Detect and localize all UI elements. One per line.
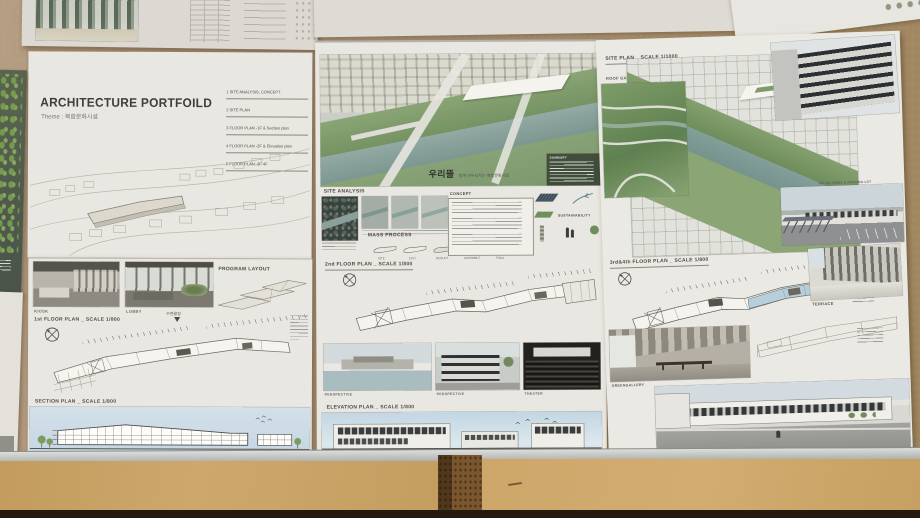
tree-canopy-dots bbox=[0, 74, 23, 255]
theater-label: THEATER bbox=[525, 392, 543, 396]
kiosk-label: KIOSK bbox=[34, 309, 48, 314]
lot-markings bbox=[840, 228, 900, 240]
floor2-title: 2nd FLOOR PLAN _ SCALE 1/800 bbox=[325, 261, 413, 270]
mass-step-label: DEDUCT bbox=[436, 256, 449, 260]
building-band bbox=[353, 356, 393, 362]
terrace-label: TERRACE bbox=[812, 301, 834, 307]
program-layout-label: PROGRAM LAYOUT bbox=[218, 266, 270, 272]
index-item: 2 SITE PLAN bbox=[226, 107, 308, 117]
colonnade-stripes bbox=[36, 0, 138, 30]
person-icon bbox=[566, 228, 569, 238]
theater-interior-photo bbox=[523, 342, 600, 389]
hero-title: 우리뜰 bbox=[429, 169, 455, 179]
portfolio-title: ARCHITECTURE PORTFOILD bbox=[40, 95, 212, 110]
window-strip bbox=[338, 427, 446, 434]
cyclist-silhouette bbox=[776, 431, 780, 438]
analysis-map-3 bbox=[422, 196, 448, 228]
terrace-photo bbox=[808, 244, 903, 301]
facade-window-bands bbox=[441, 355, 499, 381]
facade-fins bbox=[822, 244, 902, 284]
left-edge-landscape-board bbox=[0, 70, 27, 297]
elevation-building-mid bbox=[462, 432, 518, 448]
window-strip bbox=[465, 435, 515, 440]
bar-diagram-sketch bbox=[244, 3, 286, 40]
street-tree bbox=[503, 357, 513, 367]
sky-sliver bbox=[808, 248, 825, 269]
person-icon bbox=[571, 230, 574, 238]
section-title: SECTION PLAN _ SCALE 1/800 bbox=[35, 399, 116, 405]
analysis-map-1 bbox=[362, 196, 388, 228]
map-river-line bbox=[392, 205, 418, 219]
facade-window-bands bbox=[797, 42, 894, 115]
analysis-map-2 bbox=[392, 196, 418, 228]
elevation-title: ELEVATION PLAN _ SCALE 1/800 bbox=[327, 404, 415, 410]
mass-step-label: FINAL bbox=[496, 256, 505, 260]
site-analysis-label: SITE ANALYSIS bbox=[324, 188, 365, 194]
middle-board: 우리뜰 함께 어우러지는 복합문화시설 SUMMARY SITE ANALYSI… bbox=[315, 39, 607, 466]
floor1-plan-drawing bbox=[36, 321, 306, 402]
window-strip bbox=[338, 438, 408, 444]
curved-paths bbox=[601, 81, 689, 198]
index-item: 1 SITE ANALYSIS, CONCEPT bbox=[226, 89, 308, 99]
window-strip bbox=[535, 426, 581, 433]
mass-step-shape bbox=[402, 242, 428, 254]
gap-shadow bbox=[438, 455, 452, 513]
parking-lot-photo bbox=[781, 184, 905, 246]
concept-paragraph-lines bbox=[452, 218, 522, 230]
facade-photo bbox=[771, 35, 900, 121]
hero-title-group: 우리뜰 함께 어우러지는 복합문화시설 bbox=[429, 164, 509, 182]
courtyard-render-photo bbox=[36, 0, 139, 42]
elevation-building-right bbox=[532, 423, 584, 447]
terrace-deck bbox=[810, 282, 903, 301]
plan-diagram-sketch bbox=[190, 0, 231, 43]
sustainability-label: SUSTAINABILITY bbox=[558, 213, 591, 217]
concept-paragraph-lines bbox=[452, 234, 522, 246]
canopy-posts bbox=[783, 220, 837, 234]
mass-step-label: ASSEMBLE bbox=[464, 256, 480, 260]
greengallery-photo bbox=[609, 326, 751, 382]
aerial-city-sketch bbox=[30, 129, 311, 256]
side-wall bbox=[771, 49, 802, 121]
axon-legend-lines bbox=[857, 327, 883, 344]
right-board: SITE PLAN _ SCALE 1/1000 ROOF GARDEN bbox=[596, 31, 913, 460]
upper-left-board bbox=[22, 0, 319, 50]
aerial-park-render-inset bbox=[601, 81, 689, 198]
map-river-line bbox=[422, 205, 448, 219]
concept-text-box bbox=[448, 198, 534, 256]
lobby-label: LOBBY bbox=[126, 309, 142, 314]
mass-process-label: MASS PROCESS bbox=[368, 232, 412, 238]
summary-label: SUMMARY bbox=[550, 155, 601, 159]
program-layout-axon-diagram bbox=[214, 275, 310, 317]
satellite-caption-lines bbox=[322, 242, 356, 250]
upper-middle-paper bbox=[314, 0, 751, 37]
street-trees bbox=[846, 410, 876, 421]
furniture bbox=[133, 292, 173, 300]
window-mullions bbox=[73, 270, 117, 292]
elevation-building-left bbox=[334, 424, 450, 449]
bottom-dark-edge bbox=[0, 510, 920, 518]
plan-legend-lines bbox=[290, 315, 308, 339]
building-left-wing bbox=[655, 393, 690, 428]
seat-rows bbox=[525, 360, 598, 387]
bird-landscape-icon bbox=[572, 191, 594, 205]
concept-label: CONCEPT bbox=[450, 191, 472, 196]
perspective1-label: PERSPECTIVE bbox=[325, 392, 353, 396]
gallery-label: GREENGALLERY bbox=[612, 383, 645, 388]
floor2-plan-drawing bbox=[332, 269, 598, 344]
table-gap-corkboard bbox=[438, 455, 482, 513]
left-board-bottom-sheet: KIOSK LOBBY PROGRAM LAYOUT 1st FLOOR PLA… bbox=[28, 258, 313, 463]
mass-step-label: ECO bbox=[409, 256, 416, 260]
plants bbox=[181, 284, 207, 296]
solar-panel-icon bbox=[535, 194, 559, 202]
tree-dots-sketch bbox=[881, 0, 920, 16]
final-exterior-render bbox=[655, 379, 911, 457]
axon-wireframe-drawing bbox=[748, 309, 907, 362]
aerial-masterplan-render: 우리뜰 함께 어우러지는 복합문화시설 SUMMARY bbox=[320, 53, 601, 186]
mass-step-label: SITE bbox=[378, 256, 385, 260]
window-wall bbox=[609, 335, 636, 370]
kiosk-interior-photo bbox=[33, 262, 119, 307]
summary-box: SUMMARY bbox=[547, 153, 601, 186]
table-left bbox=[0, 461, 443, 513]
stage-screen bbox=[533, 347, 590, 356]
counter-shape bbox=[39, 288, 69, 298]
table-right bbox=[478, 459, 920, 513]
landscape-caption-lines bbox=[0, 260, 11, 272]
perspective2-label: PERSPECTIVE bbox=[437, 392, 465, 396]
green-roof-icon bbox=[534, 212, 553, 218]
concept-paragraph-lines bbox=[452, 202, 522, 214]
left-board-top-sheet: ARCHITECTURE PORTFOILD Theme : 복합문화시설 1 … bbox=[28, 51, 313, 258]
portfolio-theme: Theme : 복합문화시설 bbox=[41, 111, 98, 120]
lobby-interior-photo bbox=[125, 262, 213, 307]
mass-step-shape bbox=[372, 242, 398, 254]
column-icon bbox=[540, 226, 544, 242]
tree-icon bbox=[590, 225, 599, 234]
satellite-map bbox=[322, 196, 358, 240]
photo-of-architecture-boards: ARCHITECTURE PORTFOILD Theme : 복합문화시설 1 … bbox=[0, 0, 920, 518]
building-perspective-photo bbox=[435, 343, 519, 390]
ground bbox=[436, 383, 520, 390]
sustainability-cluster: SUSTAINABILITY bbox=[530, 189, 602, 253]
parking-photo-group: SOLAR PANEL & PARKING LOT bbox=[780, 179, 904, 249]
map-river-line bbox=[362, 205, 388, 219]
waterfront-perspective-photo bbox=[323, 343, 431, 390]
summary-text-lines bbox=[550, 161, 594, 181]
hero-subtitle: 함께 어우러지는 복합문화시설 bbox=[459, 173, 509, 178]
